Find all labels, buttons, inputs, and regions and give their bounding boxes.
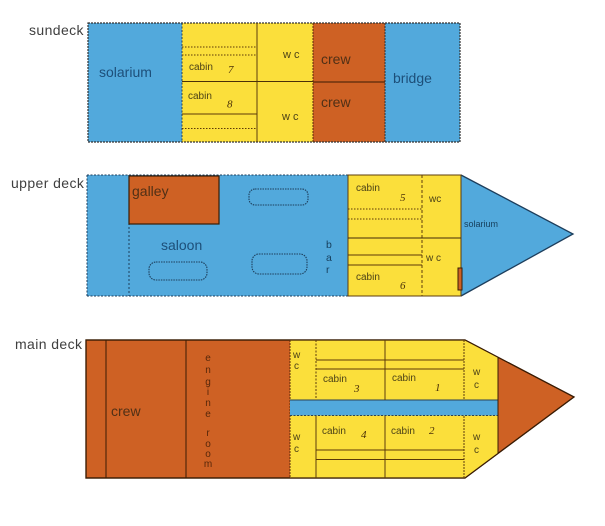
- svg-text:1: 1: [435, 382, 441, 394]
- svg-text:cabin: cabin: [392, 373, 416, 384]
- svg-text:w c: w c: [281, 111, 299, 123]
- svg-text:a: a: [326, 252, 332, 264]
- svg-text:m: m: [204, 459, 212, 470]
- svg-text:upper deck: upper deck: [11, 175, 85, 191]
- svg-text:cabin: cabin: [356, 272, 380, 283]
- svg-text:crew: crew: [111, 403, 141, 419]
- svg-text:cabin: cabin: [323, 374, 347, 385]
- svg-text:w: w: [472, 367, 481, 378]
- svg-text:w: w: [292, 432, 301, 443]
- svg-text:cabin: cabin: [356, 183, 380, 194]
- svg-text:saloon: saloon: [161, 237, 202, 253]
- svg-text:c: c: [474, 380, 479, 391]
- svg-text:w c: w c: [282, 49, 300, 61]
- svg-text:crew: crew: [321, 51, 351, 67]
- svg-text:8: 8: [227, 99, 233, 111]
- svg-text:cabin: cabin: [391, 426, 415, 437]
- svg-text:2: 2: [429, 425, 435, 437]
- svg-text:main deck: main deck: [15, 336, 83, 352]
- svg-text:cabin: cabin: [322, 426, 346, 437]
- svg-text:i: i: [207, 387, 209, 398]
- svg-text:c: c: [294, 444, 299, 455]
- svg-text:6: 6: [400, 280, 406, 292]
- svg-text:cabin: cabin: [189, 62, 213, 73]
- svg-text:e: e: [205, 409, 211, 420]
- svg-text:w: w: [472, 432, 481, 443]
- svg-text:wc: wc: [428, 194, 441, 205]
- svg-text:solarium: solarium: [99, 64, 152, 80]
- svg-text:4: 4: [361, 429, 367, 441]
- svg-text:n: n: [205, 365, 211, 376]
- svg-text:sundeck: sundeck: [29, 22, 85, 38]
- svg-text:w c: w c: [425, 253, 441, 264]
- svg-text:bridge: bridge: [393, 70, 432, 86]
- svg-text:r: r: [326, 264, 330, 276]
- svg-text:b: b: [326, 239, 332, 251]
- svg-text:galley: galley: [132, 183, 169, 199]
- svg-text:cabin: cabin: [188, 91, 212, 102]
- svg-text:c: c: [474, 445, 479, 456]
- svg-text:w: w: [292, 350, 301, 361]
- svg-text:3: 3: [353, 383, 360, 395]
- svg-text:e: e: [205, 353, 211, 364]
- svg-text:7: 7: [228, 64, 234, 76]
- svg-text:solarium: solarium: [464, 219, 498, 229]
- svg-text:n: n: [205, 398, 211, 409]
- svg-text:c: c: [294, 361, 299, 372]
- svg-text:crew: crew: [321, 94, 351, 110]
- svg-text:5: 5: [400, 192, 406, 204]
